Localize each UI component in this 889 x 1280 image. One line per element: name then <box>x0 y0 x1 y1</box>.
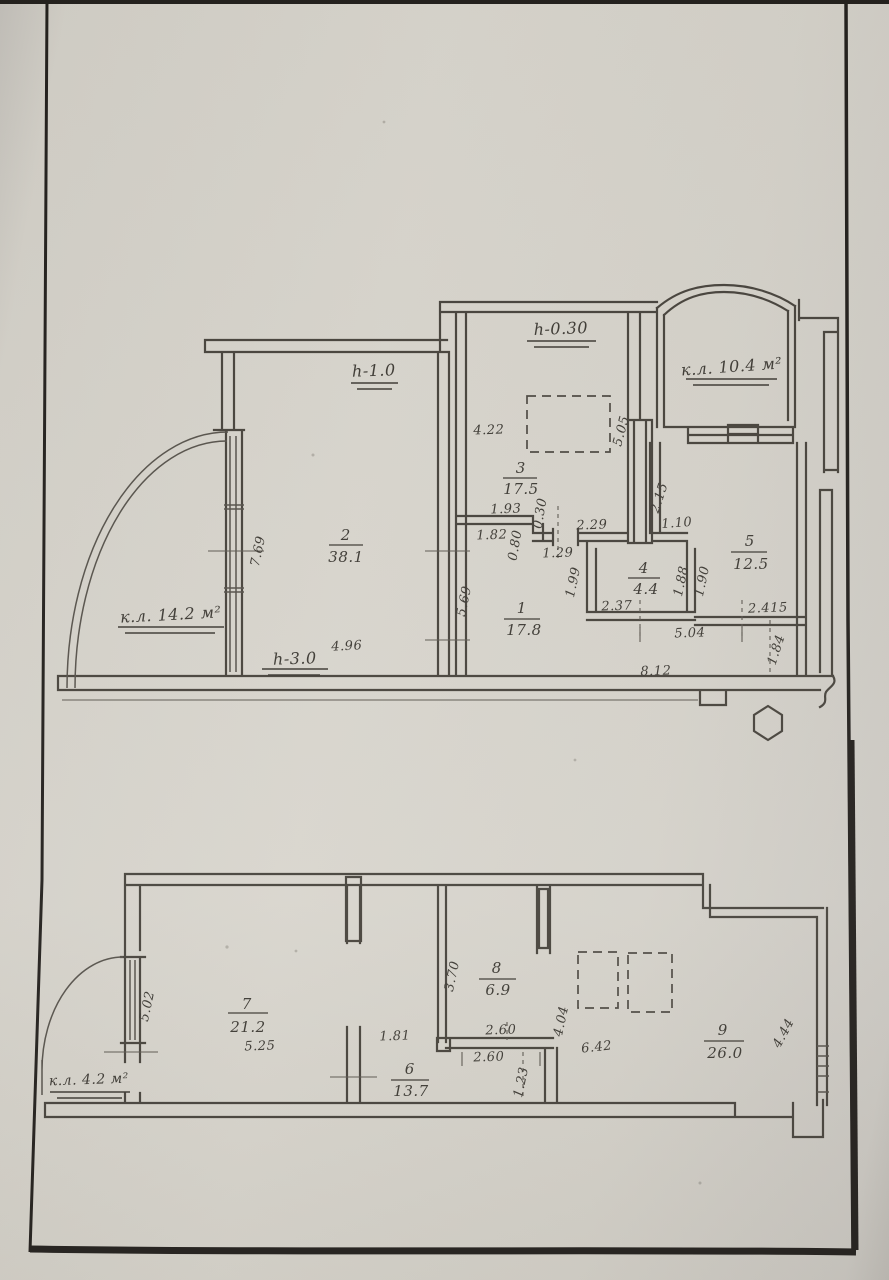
room3-number: 3 <box>516 459 527 477</box>
dim-1-88: 1.88 <box>671 565 692 598</box>
floor-plan-drawing: h-1.0 h-0.30 h-3.0 к.л. 14.2 м² к.л. 10.… <box>0 0 889 1280</box>
loggia-label-right-underline <box>686 379 777 385</box>
loggia-label-right: к.л. 10.4 м² <box>680 354 782 380</box>
dim-4-22: 4.22 <box>472 422 504 438</box>
page-border-left <box>30 0 47 1252</box>
loggia-label-left-underline <box>118 627 224 633</box>
room4-number: 4 <box>638 559 650 577</box>
dim-1-82: 1.82 <box>476 527 507 543</box>
dim-1-84: 1.84 <box>765 633 789 667</box>
dim-1-10: 1.10 <box>661 515 693 532</box>
room5-number: 5 <box>745 532 756 550</box>
dim-2-60-inner: 2.60 <box>484 1022 516 1038</box>
dim-4-04: 4.04 <box>551 1005 572 1039</box>
lower-loggia-label-left: к.л. 4.2 м² <box>49 1071 130 1090</box>
dim-1-23: 1.23 <box>511 1066 532 1099</box>
height-mark-room2-underline <box>351 383 398 389</box>
height-mark-entry: h-3.0 <box>273 648 317 669</box>
room1-number: 1 <box>517 599 528 617</box>
dim-5-69: 5.69 <box>454 585 475 618</box>
paper-speck <box>383 121 386 124</box>
dim-1-29: 1.29 <box>542 545 573 561</box>
dim-2-415: 2.415 <box>747 600 788 616</box>
page-border-bottom <box>30 1249 856 1252</box>
dim-1-99: 1.99 <box>563 566 584 599</box>
hexagon-symbol <box>754 706 782 740</box>
upper-plan-walls <box>58 285 838 740</box>
dim-4-96: 4.96 <box>330 638 363 655</box>
height-mark-room3-underline <box>527 341 596 347</box>
dim-0-30: 0.30 <box>530 497 550 530</box>
room3-dashed-shaft <box>527 396 610 452</box>
dim-4-44: 4.44 <box>770 1016 798 1051</box>
upper-dim-ticks <box>208 551 742 642</box>
room8-area: 6.9 <box>485 981 510 999</box>
lower-walls-main <box>45 874 827 1137</box>
lower-loggia-label-underline <box>50 1092 130 1098</box>
dim-7-69: 7.69 <box>248 535 269 568</box>
dim-5-04: 5.04 <box>674 625 705 641</box>
room5-area: 12.5 <box>733 555 768 573</box>
height-mark-entry-underline <box>262 669 328 675</box>
room9-number: 9 <box>718 1021 729 1039</box>
dim-2-37: 2.37 <box>600 598 633 614</box>
lower-floor-plan: к.л. 4.2 м² 7 21.2 6 13.7 8 6.9 9 26.0 5… <box>42 874 829 1137</box>
room7-number: 7 <box>242 995 253 1013</box>
room7-area: 21.2 <box>229 1018 265 1036</box>
room4-area: 4.4 <box>632 580 658 598</box>
scanned-floor-plan-page: h-1.0 h-0.30 h-3.0 к.л. 14.2 м² к.л. 10.… <box>0 0 889 1280</box>
upper-floor-plan: h-1.0 h-0.30 h-3.0 к.л. 14.2 м² к.л. 10.… <box>58 285 838 740</box>
dim-1-93: 1.93 <box>490 501 521 517</box>
height-mark-room3: h-0.30 <box>533 318 588 339</box>
paper-speck <box>574 759 577 762</box>
height-mark-room2: h-1.0 <box>352 360 396 381</box>
room9-area: 26.0 <box>706 1044 742 1062</box>
room9-dashed-squares <box>578 952 672 1012</box>
paper-speck <box>699 1182 702 1185</box>
paper-speck <box>295 950 298 953</box>
page-border-right-thick <box>851 740 855 1250</box>
lower-left-window-mullions <box>130 960 135 1040</box>
dim-8-12: 8.12 <box>640 663 671 679</box>
paper-speck <box>312 454 315 457</box>
dim-2-60-outer: 2.60 <box>472 1049 504 1065</box>
room2-number: 2 <box>340 526 352 544</box>
room3-area: 17.5 <box>503 480 538 498</box>
upper-loggia-arc <box>67 432 228 688</box>
room8-number: 8 <box>492 959 503 977</box>
room2-area: 38.1 <box>328 548 363 566</box>
dim-0-80: 0.80 <box>505 529 525 562</box>
paper-speck <box>225 945 228 948</box>
dim-5-25: 5.25 <box>244 1038 275 1054</box>
loggia-label-left: к.л. 14.2 м² <box>120 602 222 626</box>
dim-5-05: 5.05 <box>610 414 633 448</box>
dim-6-42: 6.42 <box>580 1038 612 1056</box>
upper-walls-main <box>58 285 838 707</box>
dim-1-81: 1.81 <box>379 1028 410 1044</box>
room1-area: 17.8 <box>506 621 541 639</box>
room6-number: 6 <box>405 1060 416 1078</box>
dim-2-29: 2.29 <box>575 517 607 533</box>
lower-plan-walls <box>42 874 829 1137</box>
room6-area: 13.7 <box>393 1082 428 1100</box>
